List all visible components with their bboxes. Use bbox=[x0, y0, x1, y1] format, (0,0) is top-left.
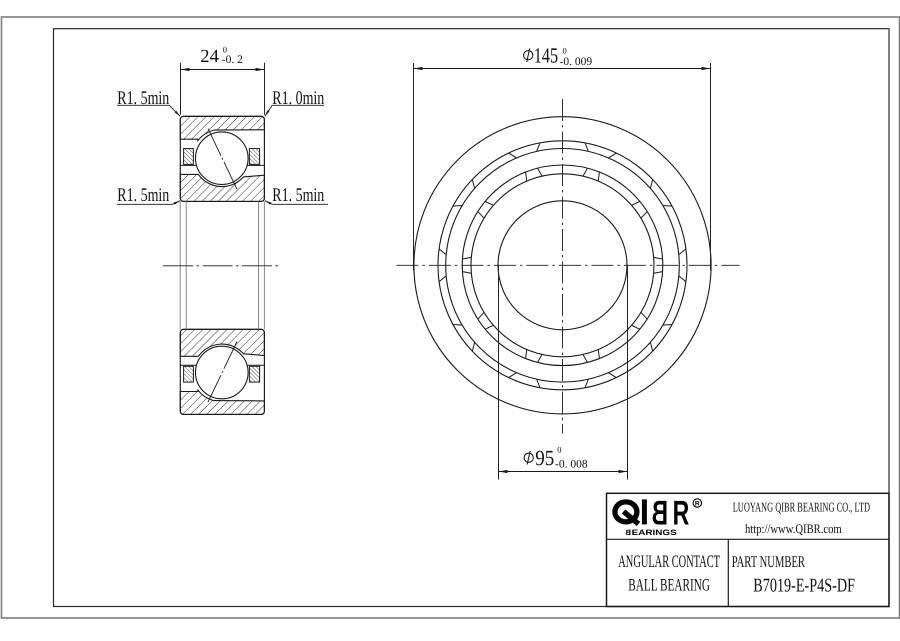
svg-text:PART NUMBER: PART NUMBER bbox=[732, 552, 805, 571]
svg-text:http://www.QIBR.com: http://www.QIBR.com bbox=[745, 521, 842, 536]
svg-text:-0. 008: -0. 008 bbox=[555, 459, 588, 471]
svg-text:R: R bbox=[673, 494, 690, 532]
svg-text:BALL BEARING: BALL BEARING bbox=[628, 574, 710, 594]
svg-text:0: 0 bbox=[557, 444, 561, 454]
svg-text:0: 0 bbox=[563, 45, 567, 55]
svg-text:B: B bbox=[625, 528, 631, 537]
svg-text:R1. 5min: R1. 5min bbox=[117, 185, 169, 206]
svg-text:-0. 009: -0. 009 bbox=[560, 56, 593, 68]
svg-text:24: 24 bbox=[200, 46, 219, 67]
svg-text:145: 145 bbox=[534, 43, 558, 67]
svg-text:ANGULAR CONTACT: ANGULAR CONTACT bbox=[618, 551, 720, 571]
svg-text:B7019-E-P4S-DF: B7019-E-P4S-DF bbox=[753, 576, 855, 597]
svg-text:-0. 2: -0. 2 bbox=[222, 54, 243, 66]
svg-text:LUOYANG QIBR BEARING CO., LTD: LUOYANG QIBR BEARING CO., LTD bbox=[733, 500, 870, 515]
svg-text:EARINGS: EARINGS bbox=[632, 528, 677, 537]
svg-text:95: 95 bbox=[535, 446, 554, 470]
svg-text:B: B bbox=[652, 494, 668, 532]
svg-text:R1. 5min: R1. 5min bbox=[272, 185, 324, 206]
svg-text:R: R bbox=[695, 501, 700, 508]
